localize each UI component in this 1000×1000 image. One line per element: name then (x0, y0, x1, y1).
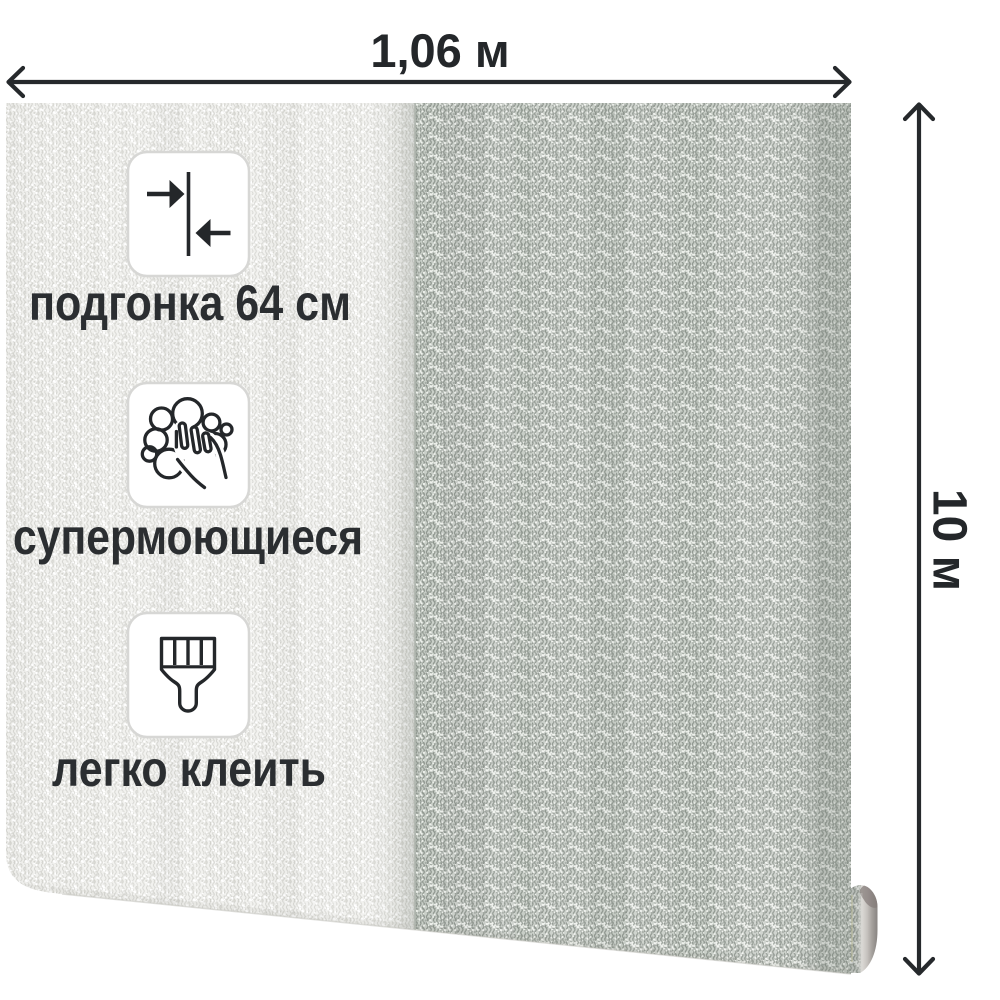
svg-text:легко клеить: легко клеить (52, 741, 326, 797)
svg-text:10 м: 10 м (923, 489, 976, 591)
svg-text:1,06 м: 1,06 м (370, 24, 509, 77)
svg-text:супермоющиеся: супермоющиеся (13, 509, 363, 565)
svg-text:подгонка 64 см: подгонка 64 см (29, 275, 351, 331)
